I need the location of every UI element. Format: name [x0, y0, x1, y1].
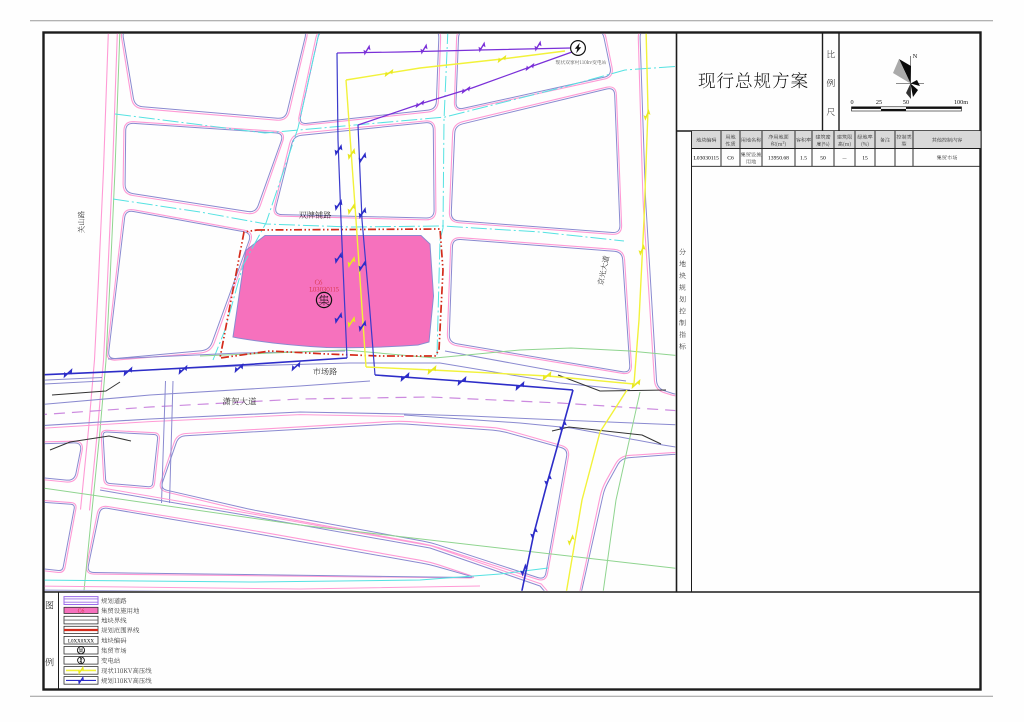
svg-text:L0XX0XXX: L0XX0XXX — [68, 639, 94, 644]
svg-text:C6: C6 — [727, 156, 734, 162]
svg-text:1.5: 1.5 — [800, 156, 807, 162]
svg-text:L03030115: L03030115 — [693, 156, 719, 162]
svg-text:25: 25 — [876, 99, 882, 106]
svg-text:13950.68: 13950.68 — [768, 156, 789, 162]
svg-text:0: 0 — [850, 99, 853, 106]
svg-text:N: N — [913, 53, 918, 60]
svg-text:50: 50 — [903, 99, 909, 106]
svg-text:100m: 100m — [954, 99, 968, 106]
svg-text:15: 15 — [862, 156, 868, 162]
svg-text:50: 50 — [820, 156, 826, 162]
